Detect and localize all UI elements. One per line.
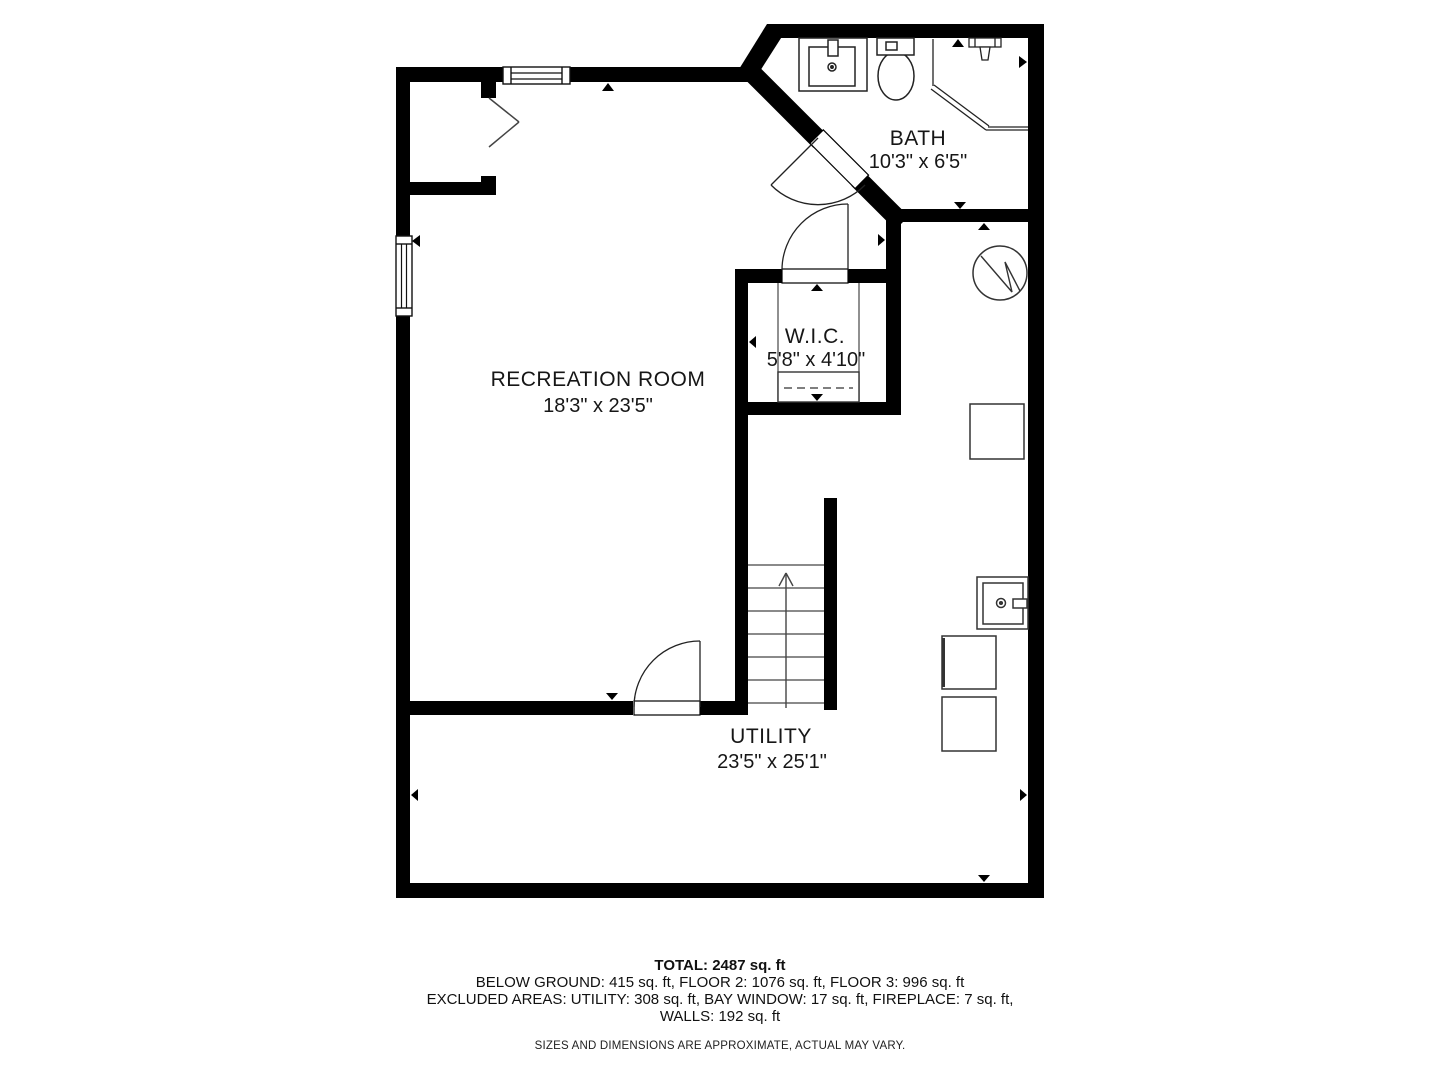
wall-wic-bottom <box>735 402 901 415</box>
dimension-arrow-icon <box>411 789 418 801</box>
total-area: TOTAL: 2487 sq. ft <box>0 957 1440 974</box>
laundry-sink-icon <box>977 577 1028 629</box>
wall-bath-bottom <box>886 209 1044 222</box>
recreation-room-dimensions: 18'3" x 23'5" <box>543 395 653 417</box>
excluded-areas-walls: WALLS: 192 sq. ft <box>0 1008 1440 1025</box>
wall-top-bath <box>767 24 1044 38</box>
dimension-arrow-icon <box>749 336 756 348</box>
wall-wic-stair-left <box>735 269 748 713</box>
dimension-arrow-icon <box>1019 56 1027 68</box>
bath-label: BATH <box>890 127 946 150</box>
dimension-arrow-icon <box>1020 789 1027 801</box>
dimension-arrow-icon <box>811 284 823 291</box>
bath-dimensions: 10'3" x 6'5" <box>869 151 968 173</box>
utility-door-swing-icon <box>634 641 700 707</box>
dimension-arrow-icon <box>978 223 990 230</box>
dimension-arrow-icon <box>954 202 966 209</box>
wall-fireplace-bottom <box>396 182 496 195</box>
wall-rec-utility-left <box>396 701 633 715</box>
wic-door-swing-icon <box>782 204 848 270</box>
wall-top-rec <box>400 67 753 82</box>
bath-fixtures <box>799 38 1028 130</box>
appliance-icon <box>970 404 1024 459</box>
recreation-room-label: RECREATION ROOM <box>491 368 706 391</box>
floor-areas: BELOW GROUND: 415 sq. ft, FLOOR 2: 1076 … <box>0 974 1440 991</box>
dryer-icon <box>942 697 996 751</box>
excluded-areas: EXCLUDED AREAS: UTILITY: 308 sq. ft, BAY… <box>0 991 1440 1008</box>
shower-head-icon <box>969 38 1001 60</box>
window-icon-left <box>396 236 412 316</box>
window-icon-top <box>503 67 570 84</box>
floor-plan: BATH 10'3" x 6'5" W.I.C. 5'8" x 4'10" RE… <box>0 0 1440 1080</box>
stairs-up-icon <box>748 565 824 708</box>
dimension-arrow-icon <box>602 83 614 91</box>
utility-fixtures <box>942 246 1028 751</box>
dimension-arrow-icon <box>606 693 618 700</box>
wall-right <box>1028 24 1044 898</box>
shower-icon <box>931 38 1028 130</box>
water-heater-icon <box>973 246 1027 300</box>
wic-dimensions: 5'8" x 4'10" <box>767 349 866 371</box>
wic-door-opening <box>782 269 848 283</box>
wall-fireplace-stub-top <box>481 82 496 98</box>
dimension-arrow-icon <box>952 39 964 47</box>
toilet-icon <box>877 38 914 100</box>
wall-wic-right <box>886 209 901 415</box>
utility-dimensions: 23'5" x 25'1" <box>717 751 827 773</box>
dimension-arrow-icon <box>978 875 990 882</box>
wall-rec-utility-right <box>700 701 748 715</box>
bath-door-opening <box>810 130 869 189</box>
dimension-arrow-icon <box>878 234 885 246</box>
disclaimer: SIZES AND DIMENSIONS ARE APPROXIMATE, AC… <box>0 1038 1440 1055</box>
area-summary: TOTAL: 2487 sq. ft BELOW GROUND: 415 sq.… <box>0 957 1440 1055</box>
dimension-arrow-icon <box>412 235 420 247</box>
sink-vanity-icon <box>799 38 867 91</box>
utility-label: UTILITY <box>730 725 812 748</box>
fireplace-icon <box>489 98 519 147</box>
stair-direction-arrow <box>779 573 793 708</box>
washer-icon <box>942 636 996 689</box>
wic-label: W.I.C. <box>785 325 845 348</box>
floorplan-page: BATH 10'3" x 6'5" W.I.C. 5'8" x 4'10" RE… <box>0 0 1440 1080</box>
wall-bottom <box>396 883 1044 898</box>
wall-stair-right <box>824 498 837 710</box>
utility-door-opening <box>634 701 700 715</box>
